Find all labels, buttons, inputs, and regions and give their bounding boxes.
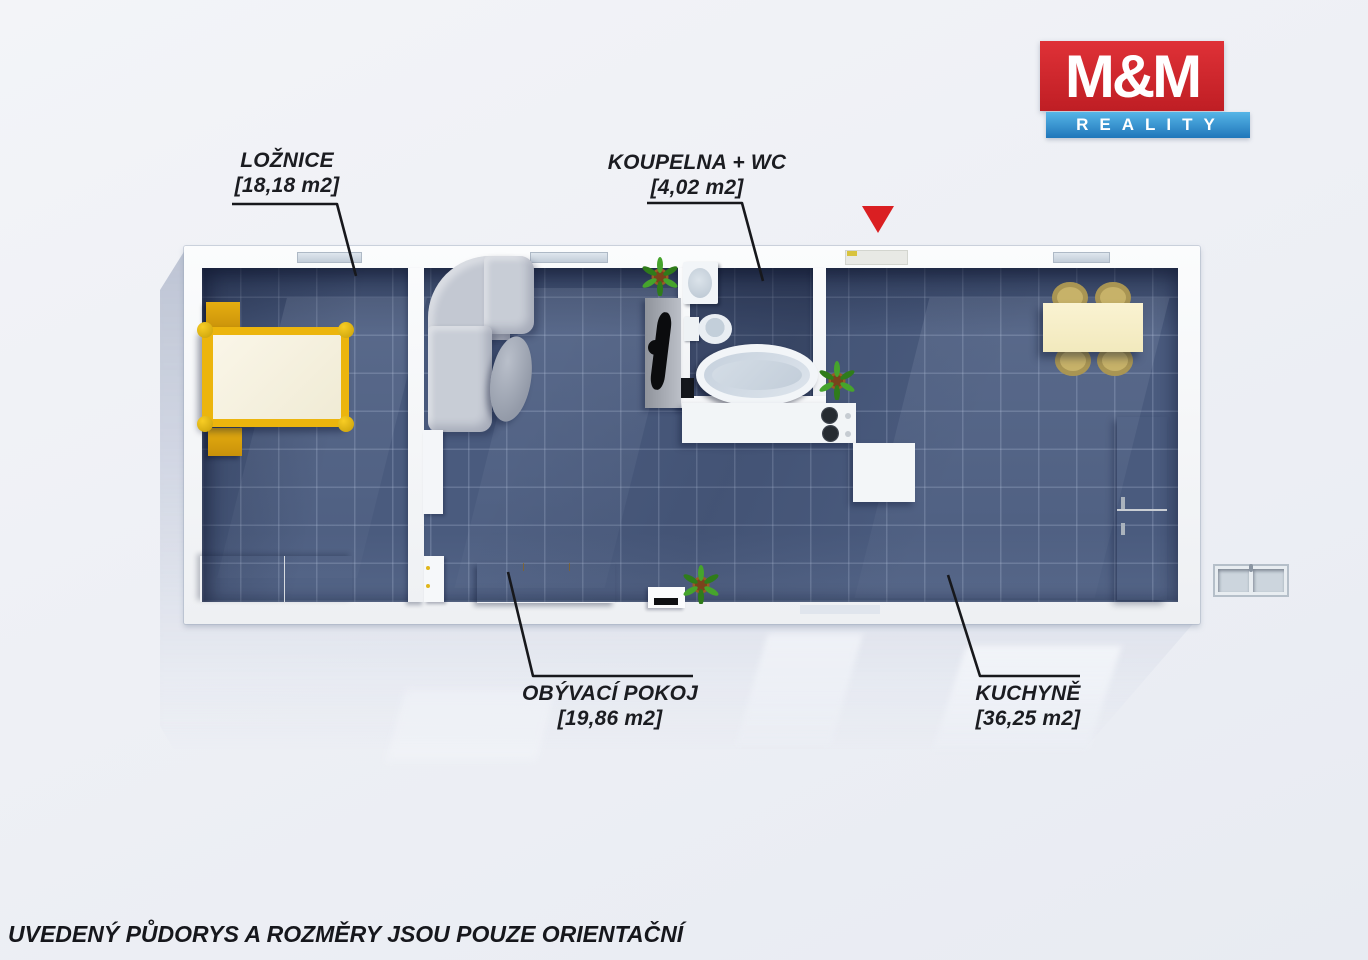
cabinet-knob — [426, 566, 430, 570]
room-area: [18,18 m2] — [157, 173, 417, 198]
logo-mm-text: M&M — [1065, 42, 1199, 111]
logo-mm-box: M&M — [1040, 41, 1224, 111]
tv-base — [648, 340, 663, 355]
nightstand — [208, 428, 242, 456]
room-label-kitchen: KUCHYNĚ [36,25 m2] — [898, 681, 1158, 731]
plant-icon — [817, 360, 857, 400]
window-kitchen — [1053, 252, 1110, 263]
cabinet-knob — [426, 584, 430, 588]
wardrobe — [200, 556, 352, 602]
fridge-handle — [1121, 523, 1125, 535]
entrance-marker-icon — [862, 206, 894, 233]
wall-bedroom-living — [408, 268, 424, 602]
stove-burner — [821, 407, 838, 424]
room-name: OBÝVACÍ POKOJ — [478, 681, 742, 706]
logo-reality-bar: REALITY — [1046, 112, 1250, 138]
faucet — [1249, 564, 1253, 572]
dining-table — [1043, 303, 1143, 352]
floor-plan — [184, 246, 1200, 624]
shelf-unit — [423, 430, 443, 514]
room-label-bedroom: LOŽNICE [18,18 m2] — [157, 148, 417, 198]
corner-sofa-top-arm — [484, 256, 534, 334]
stove-knob — [845, 413, 851, 419]
small-cabinet — [424, 556, 444, 602]
fridge-handle — [1121, 497, 1125, 509]
bed-post — [197, 416, 213, 432]
fireplace-slot — [654, 598, 678, 605]
bed — [202, 327, 349, 427]
bathtub — [696, 344, 818, 406]
disclaimer-text: UVEDENÝ PŮDORYS A ROZMĚRY JSOU POUZE ORI… — [8, 921, 768, 948]
bed-post — [338, 322, 354, 338]
window-bedroom — [297, 252, 362, 263]
stove-knob — [845, 431, 851, 437]
room-name: KUCHYNĚ — [898, 681, 1158, 706]
room-area: [4,02 m2] — [567, 175, 827, 200]
sink-basin — [1253, 569, 1284, 592]
entrance-door-handle — [847, 251, 857, 256]
toilet-tank — [684, 317, 699, 341]
window-living — [530, 252, 608, 263]
sideboard — [477, 563, 615, 603]
window-kitchen-south — [800, 605, 880, 614]
floorplan-page: M&M REALITY — [0, 0, 1368, 960]
room-area: [36,25 m2] — [898, 706, 1158, 731]
bed-post — [197, 322, 213, 338]
bed-frame — [202, 327, 349, 427]
plant-icon — [640, 256, 680, 296]
fireplace-unit — [648, 587, 685, 608]
corner-sofa-left-arm — [428, 326, 492, 432]
tv-stand — [645, 298, 681, 408]
toilet-bowl — [698, 314, 732, 344]
room-name: KOUPELNA + WC — [567, 150, 827, 175]
room-label-bathroom: KOUPELNA + WC [4,02 m2] — [567, 150, 827, 200]
room-name: LOŽNICE — [157, 148, 417, 173]
fridge-cabinet — [1117, 417, 1167, 600]
logo-reality-text: REALITY — [1070, 115, 1226, 135]
kitchen-sink — [1213, 564, 1289, 597]
washbasin — [683, 262, 718, 304]
stove-burner — [822, 425, 839, 442]
room-label-living: OBÝVACÍ POKOJ [19,86 m2] — [478, 681, 742, 731]
plant-icon — [681, 564, 721, 604]
bed-post — [338, 416, 354, 432]
sink-basin — [1218, 569, 1249, 592]
kitchen-counter-corner — [853, 443, 915, 502]
bathroom-door-recess — [680, 378, 694, 398]
room-area: [19,86 m2] — [478, 706, 742, 731]
